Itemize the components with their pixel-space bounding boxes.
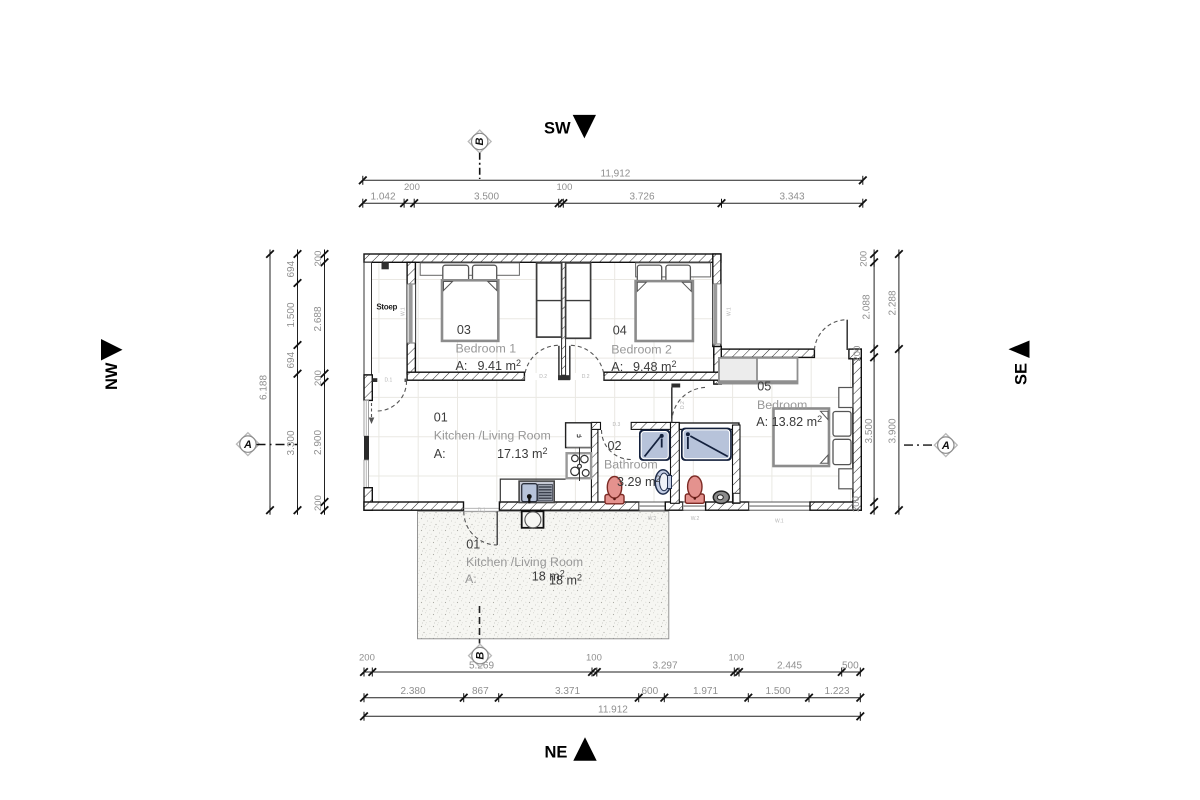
svg-text:1.223: 1.223 bbox=[825, 686, 850, 697]
svg-text:W.1: W.1 bbox=[401, 307, 407, 316]
svg-text:Stoep: Stoep bbox=[376, 303, 397, 312]
svg-text:B: B bbox=[475, 652, 487, 660]
svg-text:200: 200 bbox=[404, 182, 420, 193]
svg-text:Bedroom: Bedroom bbox=[757, 398, 807, 412]
svg-text:2.088: 2.088 bbox=[862, 294, 873, 319]
svg-text:200: 200 bbox=[859, 251, 870, 267]
svg-text:694: 694 bbox=[286, 260, 297, 277]
svg-text:1.500: 1.500 bbox=[286, 302, 297, 327]
svg-text:W.2: W.2 bbox=[648, 516, 657, 522]
svg-text:W.2: W.2 bbox=[691, 516, 700, 522]
svg-text:3.500: 3.500 bbox=[474, 192, 499, 203]
svg-text:100: 100 bbox=[586, 653, 602, 664]
svg-text:SE: SE bbox=[1013, 363, 1031, 385]
svg-text:500: 500 bbox=[842, 661, 859, 672]
svg-text:3.900: 3.900 bbox=[888, 418, 899, 443]
svg-text:NW: NW bbox=[103, 362, 121, 390]
svg-text:2.380: 2.380 bbox=[401, 686, 426, 697]
svg-text:3.726: 3.726 bbox=[630, 192, 655, 203]
svg-text:3.297: 3.297 bbox=[653, 661, 678, 672]
svg-text:A:: A: bbox=[465, 572, 477, 586]
svg-text:NE: NE bbox=[545, 743, 568, 761]
svg-text:2.688: 2.688 bbox=[313, 306, 324, 331]
svg-text:6.188: 6.188 bbox=[259, 375, 270, 400]
svg-text:600: 600 bbox=[642, 686, 659, 697]
svg-text:2.445: 2.445 bbox=[777, 661, 802, 672]
svg-text:D.2: D.2 bbox=[539, 374, 547, 380]
svg-text:01: 01 bbox=[466, 538, 480, 552]
svg-text:Kitchen /Living Room: Kitchen /Living Room bbox=[434, 428, 551, 442]
svg-text:200: 200 bbox=[313, 251, 324, 267]
svg-text:04: 04 bbox=[613, 324, 627, 338]
svg-text:11.912: 11.912 bbox=[598, 705, 628, 716]
svg-text:17.13 m2: 17.13 m2 bbox=[497, 446, 548, 461]
svg-text:3.500: 3.500 bbox=[864, 418, 875, 443]
svg-text:05: 05 bbox=[757, 380, 771, 394]
svg-text:Bedroom 2: Bedroom 2 bbox=[611, 343, 672, 357]
svg-text:200: 200 bbox=[313, 370, 324, 386]
svg-text:03: 03 bbox=[457, 323, 471, 337]
svg-text:A: 13.82 m2: A: 13.82 m2 bbox=[756, 414, 822, 429]
svg-text:01: 01 bbox=[434, 410, 448, 424]
svg-text:A:: A: bbox=[434, 447, 446, 461]
svg-text:1.042: 1.042 bbox=[371, 192, 396, 203]
svg-text:694: 694 bbox=[286, 351, 297, 368]
svg-text:Kitchen /Living Room: Kitchen /Living Room bbox=[466, 555, 583, 569]
svg-text:1.971: 1.971 bbox=[693, 686, 718, 697]
svg-text:3.300: 3.300 bbox=[286, 430, 297, 455]
svg-text:A:: A: bbox=[456, 359, 468, 373]
svg-text:11,912: 11,912 bbox=[601, 169, 631, 180]
svg-text:100: 100 bbox=[557, 182, 573, 193]
svg-text:D.2: D.2 bbox=[680, 401, 686, 409]
svg-text:100: 100 bbox=[729, 653, 745, 664]
svg-text:9.41 m2: 9.41 m2 bbox=[478, 358, 522, 373]
svg-text:200: 200 bbox=[852, 346, 863, 362]
svg-text:200: 200 bbox=[851, 496, 862, 512]
svg-text:2.288: 2.288 bbox=[888, 290, 899, 315]
svg-text:B: B bbox=[474, 138, 486, 146]
svg-text:200: 200 bbox=[313, 495, 324, 511]
svg-text:Bedroom 1: Bedroom 1 bbox=[456, 342, 517, 356]
svg-text:2.900: 2.900 bbox=[313, 430, 324, 455]
svg-text:3.343: 3.343 bbox=[780, 192, 805, 203]
svg-text:W.1: W.1 bbox=[727, 307, 733, 316]
svg-text:02: 02 bbox=[608, 439, 622, 453]
svg-text:W.1: W.1 bbox=[775, 518, 784, 524]
svg-text:9.48 m2: 9.48 m2 bbox=[633, 359, 677, 374]
svg-text:A: A bbox=[243, 439, 252, 451]
svg-text:Bathroom: Bathroom bbox=[604, 458, 658, 472]
svg-text:867: 867 bbox=[472, 686, 489, 697]
svg-text:D.1: D.1 bbox=[478, 507, 486, 513]
svg-text:SW: SW bbox=[544, 120, 571, 138]
svg-text:3.29 m2: 3.29 m2 bbox=[617, 474, 661, 489]
svg-text:200: 200 bbox=[359, 653, 375, 664]
svg-text:D.3: D.3 bbox=[613, 422, 621, 428]
svg-text:D.2: D.2 bbox=[582, 374, 590, 380]
svg-text:A:: A: bbox=[611, 360, 623, 374]
svg-text:D.1: D.1 bbox=[385, 378, 393, 384]
svg-text:A: A bbox=[941, 440, 950, 452]
svg-text:3.371: 3.371 bbox=[555, 686, 580, 697]
svg-text:1.500: 1.500 bbox=[766, 686, 791, 697]
